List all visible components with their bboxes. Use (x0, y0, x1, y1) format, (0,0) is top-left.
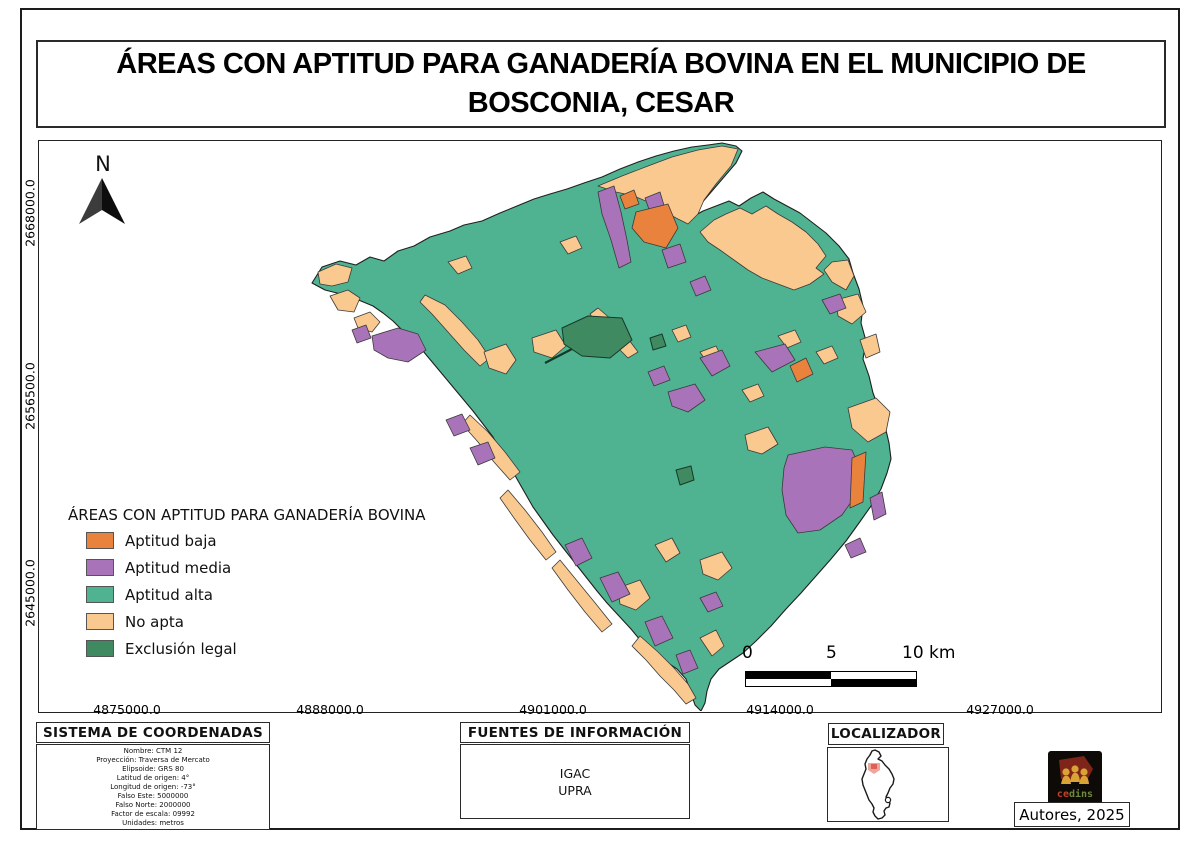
map-title-line1: ÁREAS CON APTITUD PARA GANADERÍA BOVINA … (116, 45, 1085, 84)
coord-line: Latitud de origen: 4° (117, 774, 190, 783)
legend-item-aptitud-baja: Aptitud baja (86, 532, 426, 549)
legend-item-no-apta: No apta (86, 613, 426, 630)
legend-swatch-aptitud-baja (86, 532, 114, 549)
scalebar-segment (746, 679, 831, 686)
legend-swatch-exclusion-legal (86, 640, 114, 657)
map-layout-page: ÁREAS CON APTITUD PARA GANADERÍA BOVINA … (0, 0, 1200, 848)
locator-panel-header: LOCALIZADOR (828, 723, 944, 745)
sources-panel-body: IGAC UPRA (460, 744, 690, 819)
legend-label: Aptitud alta (125, 586, 213, 604)
x-axis-tick: 4901000.0 (519, 702, 587, 717)
coord-line: Proyección: Traversa de Mercato (96, 756, 210, 765)
cedins-logo: cedins (1048, 751, 1102, 805)
legend-title: ÁREAS CON APTITUD PARA GANADERÍA BOVINA (68, 506, 426, 524)
coordinates-panel-header: SISTEMA DE COORDENADAS (36, 722, 270, 743)
legend-label: Aptitud media (125, 559, 231, 577)
scalebar-segment (831, 679, 916, 686)
legend-label: Aptitud baja (125, 532, 217, 550)
legend-label: No apta (125, 613, 184, 631)
locator-map-cesar (828, 748, 948, 821)
north-label: N (76, 152, 130, 176)
source-line: IGAC (560, 765, 590, 782)
scalebar-segment (746, 672, 831, 679)
legend-swatch-aptitud-alta (86, 586, 114, 603)
y-axis-tick: 2656500.0 (23, 362, 38, 430)
coord-line: Unidades: metros (122, 819, 184, 828)
x-axis-tick: 4914000.0 (746, 702, 814, 717)
scalebar (745, 671, 917, 687)
north-arrow: N (76, 152, 130, 236)
locator-panel-body (827, 747, 949, 822)
coord-line: Nombre: CTM 12 (124, 747, 183, 756)
legend-item-aptitud-media: Aptitud media (86, 559, 426, 576)
y-axis-tick: 2668000.0 (23, 179, 38, 247)
scalebar-segment (831, 672, 916, 679)
scalebar-label-0: 0 (742, 643, 753, 663)
sources-panel-header: FUENTES DE INFORMACIÓN (460, 722, 690, 743)
legend-item-aptitud-alta: Aptitud alta (86, 586, 426, 603)
scalebar-label-10km: 10 km (902, 643, 955, 663)
coord-line: Longitud de origen: -73° (110, 783, 196, 792)
legend-swatch-aptitud-media (86, 559, 114, 576)
coordinates-panel-body: Nombre: CTM 12 Proyección: Traversa de M… (36, 744, 270, 830)
coord-line: Factor de escala: 09992 (111, 810, 195, 819)
legend-label: Exclusión legal (125, 640, 237, 658)
north-arrow-icon (76, 176, 130, 226)
scalebar-label-5: 5 (826, 643, 837, 663)
y-axis-tick: 2645000.0 (23, 559, 38, 627)
coord-line: Elipsoide: GRS 80 (122, 765, 184, 774)
cedins-logo-text: cedins (1057, 788, 1093, 800)
map-title-line2: BOSCONIA, CESAR (468, 84, 734, 123)
locator-town-marker (885, 797, 890, 802)
legend-swatch-no-apta (86, 613, 114, 630)
map-legend: ÁREAS CON APTITUD PARA GANADERÍA BOVINA … (68, 506, 426, 667)
source-line: UPRA (558, 782, 591, 799)
map-title-box: ÁREAS CON APTITUD PARA GANADERÍA BOVINA … (36, 40, 1166, 128)
coord-line: Falso Este: 5000000 (118, 792, 189, 801)
x-axis-tick: 4888000.0 (296, 702, 364, 717)
x-axis-tick: 4875000.0 (93, 702, 161, 717)
legend-item-exclusion-legal: Exclusión legal (86, 640, 426, 657)
authors-box: Autores, 2025 (1014, 802, 1130, 827)
coord-line: Falso Norte: 2000000 (116, 801, 191, 810)
x-axis-tick: 4927000.0 (966, 702, 1034, 717)
